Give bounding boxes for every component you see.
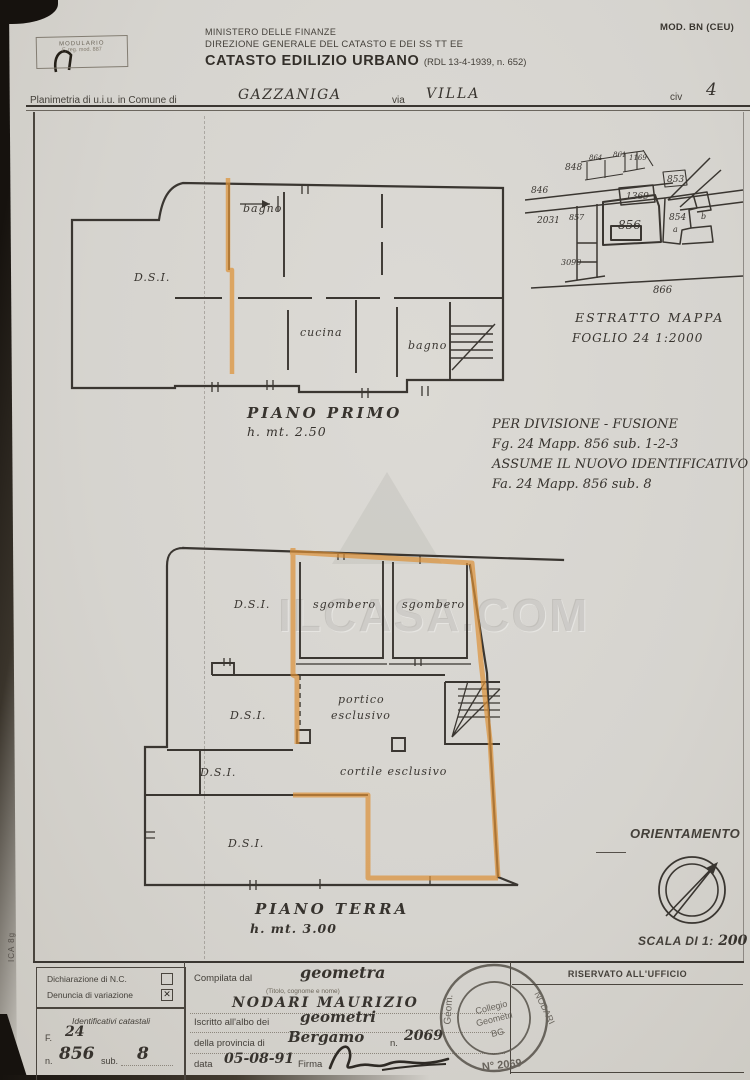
plan2-title: PIANO TERRA: [255, 900, 409, 918]
parcel-864: 864: [589, 154, 602, 162]
foglio-value: 24: [65, 1024, 84, 1040]
riservato-underline: [512, 984, 743, 985]
comune-value: GAZZANIGA: [238, 87, 341, 103]
document-title-row: CATASTO EDILIZIO URBANO (RDL 13-4-1939, …: [205, 52, 526, 70]
scale-value: 200: [718, 933, 747, 949]
parcel-866: 866: [653, 285, 673, 296]
identifiers-box: Identificativi catastali F. 24 n. 856 su…: [36, 1007, 186, 1080]
variation-checkbox: ✕: [161, 989, 173, 1001]
data-value: 05-08-91: [224, 1051, 294, 1067]
stamp-geom-text: Geom.: [442, 994, 455, 1025]
iscritto-label: Iscritto all'albo dei: [194, 1017, 269, 1028]
plan1-title: PIANO PRIMO: [247, 404, 402, 422]
identifiers-title: Identificativi catastali: [37, 1016, 185, 1026]
room-label-cucina: cucina: [300, 326, 343, 339]
floor-plan-first: bagno D.S.I. cucina bagno: [62, 142, 512, 412]
declaration-nc-label: Dichiarazione di N.C.: [47, 974, 127, 984]
scale-label: SCALA DI 1:: [638, 934, 714, 948]
map-extract: 846 848 864 861 1169 853 1369 2031 857 8…: [525, 150, 747, 322]
parcel-1369: 1369: [626, 192, 649, 202]
scan-topleft-corner: [0, 0, 58, 24]
cadastral-document-page: MODULARIO F. reg. mod. 887 MINISTERO DEL…: [0, 0, 750, 1080]
civ-value: 4: [706, 80, 717, 100]
annotation-line2: Fg. 24 Mapp. 856 sub. 1-2-3: [492, 435, 748, 455]
orientation-dash: [596, 852, 626, 853]
declaration-nc-checkbox: [161, 973, 173, 985]
orientation-label: ORIENTAMENTO: [630, 826, 740, 841]
parcel-848: 848: [565, 163, 582, 173]
frame-bottom-border: [33, 961, 744, 963]
mod-bn-label: MOD. BN (CEU): [660, 22, 734, 33]
stamp-bg-text: BG: [490, 1026, 505, 1039]
map-caption-line1: ESTRATTO MAPPA: [575, 310, 724, 325]
sub-value: 8: [137, 1044, 149, 1064]
parcel-856: 856: [618, 218, 641, 232]
numero-value: 856: [59, 1044, 95, 1064]
parcel-2031: 2031: [536, 216, 560, 226]
sub-underline: [121, 1064, 173, 1066]
annotation-line4: Fa. 24 Mapp. 856 sub. 8: [492, 475, 748, 495]
parcel-1169: 1169: [629, 154, 647, 162]
frame-left-border: [33, 112, 35, 962]
firma-label: Firma: [298, 1059, 322, 1070]
parcel-846: 846: [531, 186, 548, 196]
plan1-inner-walls: [175, 183, 503, 398]
civ-label: civ: [670, 92, 682, 103]
parcel-857: 857: [569, 213, 585, 222]
margin-side-note: ICA 8g: [7, 932, 16, 962]
room-label-bagno-right: bagno: [408, 339, 447, 352]
parcel-861: 861: [613, 151, 626, 159]
modulario-box: MODULARIO F. reg. mod. 887: [36, 35, 129, 69]
room-label-cortile: cortile esclusivo: [340, 765, 447, 778]
iscritto-value: geometri: [300, 1008, 376, 1026]
riservato-bottom-border: [510, 1072, 744, 1073]
titolo-hint: (Titolo, cognome e nome): [266, 988, 340, 995]
room-label-dsi: D.S.I.: [133, 271, 170, 284]
via-value: VILLA: [426, 86, 480, 102]
sub-label: sub.: [101, 1056, 118, 1066]
parcel-854b: b: [701, 212, 706, 221]
scan-left-edge: [0, 0, 18, 1080]
document-title: CATASTO EDILIZIO URBANO: [205, 53, 419, 69]
data-label: data: [194, 1059, 213, 1070]
plan1-height: h. mt. 2.50: [247, 424, 327, 439]
room-label-dsi4: D.S.I.: [227, 837, 264, 850]
riservato-label: RISERVATO ALL'UFFICIO: [512, 969, 743, 979]
division-annotation: PER DIVISIONE - FUSIONE Fg. 24 Mapp. 856…: [492, 415, 748, 495]
header-rule-heavy: [26, 105, 750, 107]
surveyor-stamp: Geom. NODARI N° 2069 Collegio Geometri B…: [424, 948, 565, 1080]
floor-plan-ground: D.S.I. sgombero sgombero D.S.I. portico …: [100, 532, 570, 902]
compilata-value: geometra: [300, 963, 385, 982]
plan1-orange-highlight: [228, 178, 232, 374]
annotation-line3: ASSUME IL NUOVO IDENTIFICATIVO: [492, 455, 748, 475]
room-label-portico1: portico: [338, 693, 385, 706]
room-label-sgombero1: sgombero: [313, 598, 376, 611]
ministry-line1: MINISTERO DELLE FINANZE: [205, 27, 336, 37]
map-caption-line2: FOGLIO 24 1:2000: [572, 331, 703, 345]
room-label-sgombero2: sgombero: [402, 598, 465, 611]
room-label-bagno-top: bagno: [243, 202, 282, 215]
ministry-line2: DIREZIONE GENERALE DEL CATASTO E DEI SS …: [205, 39, 463, 50]
room-label-dsi3: D.S.I.: [199, 766, 236, 779]
foglio-label: F.: [45, 1033, 52, 1043]
stamp-number-text: N° 2069: [481, 1057, 522, 1073]
compass: [652, 850, 732, 930]
declaration-box: Dichiarazione di N.C. Denuncia di variaz…: [36, 967, 186, 1009]
room-label-portico2: esclusivo: [331, 709, 391, 722]
room-label-dsi1: D.S.I.: [233, 598, 270, 611]
parcel-3090: 3090: [561, 258, 581, 267]
signature: [326, 1038, 456, 1078]
variation-label: Denuncia di variazione: [47, 990, 133, 1000]
modulario-line2: F. reg. mod. 887: [37, 46, 127, 54]
scale-row: SCALA DI 1: 200: [638, 932, 747, 950]
parcel-854a: a: [673, 225, 678, 234]
header-rule-light: [26, 110, 750, 111]
compilata-label: Compilata dal: [194, 973, 252, 984]
provincia-label: della provincia di: [194, 1038, 265, 1049]
annotation-line1: PER DIVISIONE - FUSIONE: [492, 415, 748, 435]
document-title-ref: (RDL 13-4-1939, n. 652): [424, 57, 527, 68]
numero-label: n.: [45, 1056, 53, 1066]
parcel-853: 853: [667, 175, 684, 185]
parcel-854: 854: [669, 213, 686, 223]
plan2-height: h. mt. 3.00: [250, 921, 337, 936]
room-label-dsi2: D.S.I.: [229, 709, 266, 722]
stamp-nodari-text: NODARI: [532, 990, 556, 1026]
